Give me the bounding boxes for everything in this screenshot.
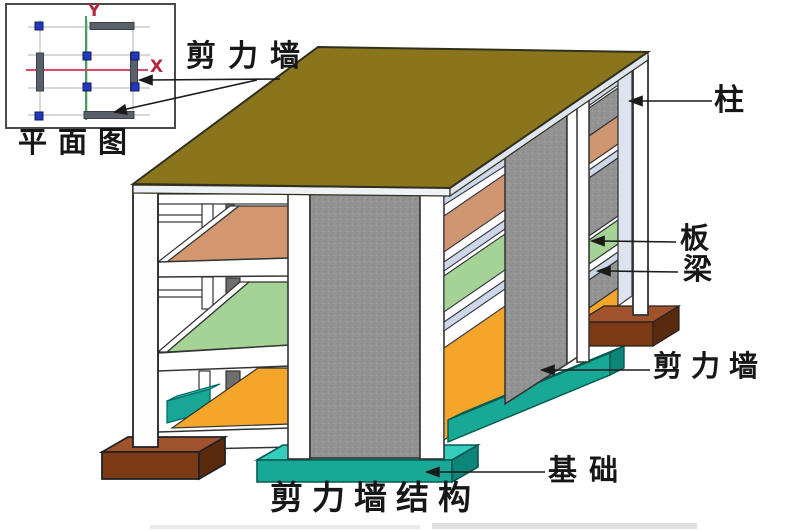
label-shear-wall-plan: 剪力墙 <box>186 42 312 72</box>
footing-left-front <box>102 452 199 479</box>
column-front-left <box>133 185 158 447</box>
structure-illustration <box>0 0 800 530</box>
shear-wall-center <box>310 186 420 458</box>
slab-salmon-left <box>167 206 290 262</box>
column-center-left <box>288 186 310 459</box>
left-bay <box>158 194 290 450</box>
figure-caption: 剪力墙结构 <box>270 481 480 514</box>
column-center-right <box>420 186 444 459</box>
column-rightbay-right <box>633 57 648 315</box>
axis-x-label: X <box>150 59 163 76</box>
building-isometric <box>102 47 679 482</box>
axis-y-label: Y <box>88 3 100 20</box>
label-beam: 梁 <box>683 255 712 284</box>
middle-bay <box>444 158 505 440</box>
column-rightbay-left <box>577 100 589 362</box>
plan-view-caption: 平面图 <box>18 128 138 157</box>
right-bay <box>577 56 679 362</box>
label-shear-wall-3d: 剪力墙 <box>653 352 767 381</box>
label-slab: 板 <box>680 224 709 253</box>
shear-wall-structure-figure: 剪力墙 平面图 Y X 柱 板 梁 剪力墙 基础 剪力墙结构 <box>0 0 800 530</box>
bottom-faint-strip <box>150 523 697 529</box>
label-foundation: 基础 <box>548 456 630 485</box>
label-column: 柱 <box>714 86 744 116</box>
